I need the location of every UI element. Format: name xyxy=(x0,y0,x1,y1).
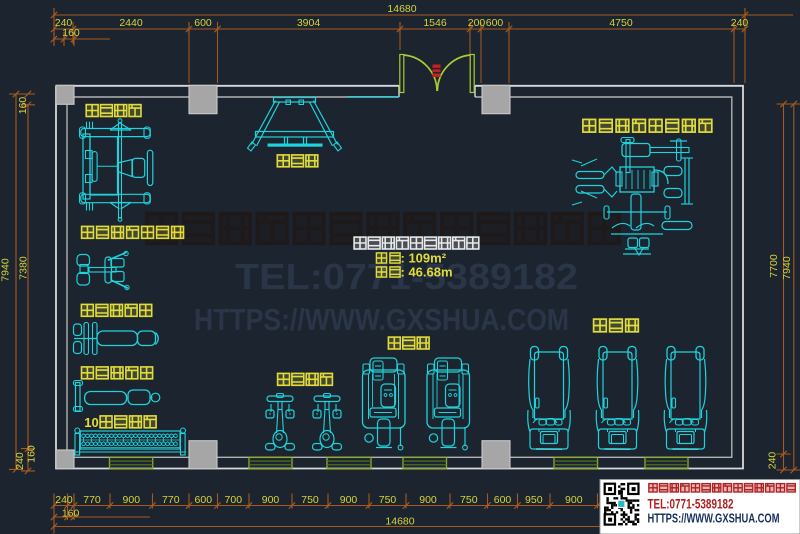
svg-text:900: 900 xyxy=(340,494,358,506)
svg-text:HTTPS://WWW.GXSHUA.COM: HTTPS://WWW.GXSHUA.COM xyxy=(648,511,780,526)
svg-text:10: 10 xyxy=(84,415,98,430)
svg-text:750: 750 xyxy=(460,494,478,506)
svg-text:: 109m²: : 109m² xyxy=(401,251,447,266)
svg-text:1546: 1546 xyxy=(423,17,447,29)
svg-text:770: 770 xyxy=(162,494,180,506)
svg-text:700: 700 xyxy=(225,494,243,506)
svg-text:160: 160 xyxy=(62,27,80,39)
svg-text:4750: 4750 xyxy=(609,17,633,29)
svg-text:900: 900 xyxy=(419,494,437,506)
svg-text:7380: 7380 xyxy=(18,256,30,280)
svg-text:240: 240 xyxy=(55,494,73,506)
svg-text:240: 240 xyxy=(14,452,26,470)
svg-text:600: 600 xyxy=(194,17,212,29)
svg-text:240: 240 xyxy=(767,452,779,470)
svg-text:900: 900 xyxy=(262,494,280,506)
svg-text:240: 240 xyxy=(731,17,749,29)
svg-text:600: 600 xyxy=(486,17,504,29)
svg-text:750: 750 xyxy=(301,494,319,506)
svg-text:7940: 7940 xyxy=(0,258,12,282)
svg-text:HTTPS://WWW.GXSHUA.COM: HTTPS://WWW.GXSHUA.COM xyxy=(194,302,569,337)
svg-text:200: 200 xyxy=(468,17,486,29)
svg-text:950: 950 xyxy=(525,494,543,506)
svg-text:2440: 2440 xyxy=(119,17,143,29)
svg-text:14680: 14680 xyxy=(387,3,416,15)
svg-text:900: 900 xyxy=(565,494,583,506)
svg-text:160: 160 xyxy=(62,508,80,520)
svg-text:160: 160 xyxy=(26,445,38,463)
svg-text:3904: 3904 xyxy=(297,17,321,29)
svg-text:7940: 7940 xyxy=(781,256,793,280)
svg-text:900: 900 xyxy=(123,494,141,506)
svg-text:14680: 14680 xyxy=(385,516,414,528)
svg-text:600: 600 xyxy=(195,494,213,506)
svg-text:: 46.68m: : 46.68m xyxy=(401,265,453,280)
svg-text:160: 160 xyxy=(17,97,29,115)
svg-text:7700: 7700 xyxy=(768,254,780,278)
svg-text:600: 600 xyxy=(494,494,512,506)
svg-text:TEL:0771-5389182: TEL:0771-5389182 xyxy=(648,497,734,512)
svg-text:750: 750 xyxy=(379,494,397,506)
svg-text:770: 770 xyxy=(83,494,101,506)
